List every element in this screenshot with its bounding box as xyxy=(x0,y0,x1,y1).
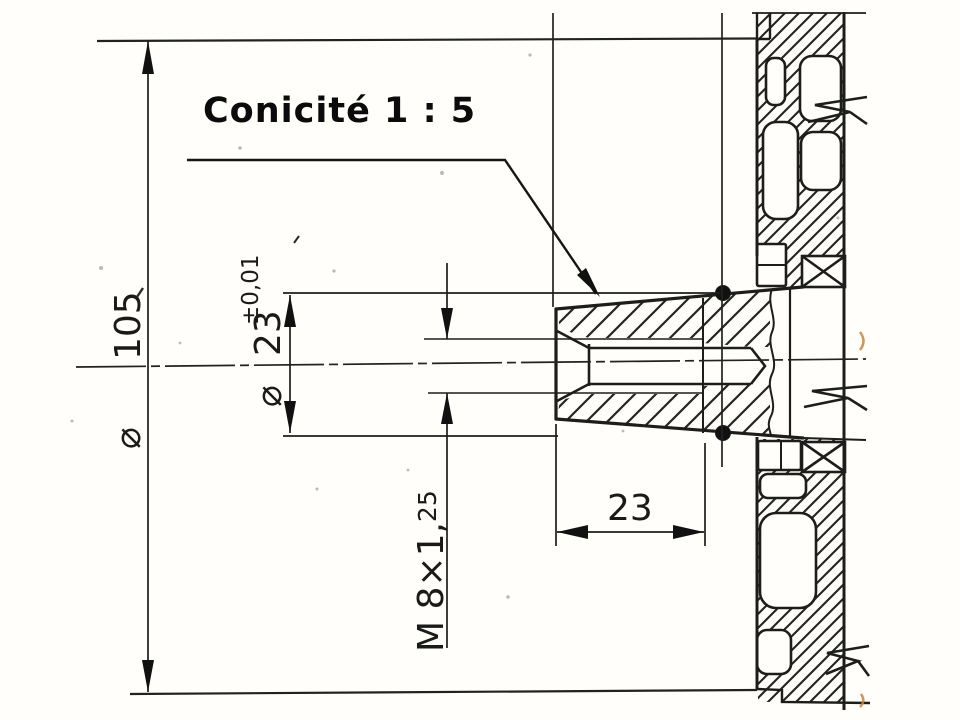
scanned-technical-drawing: ⌀ 105 ⌀ 23 ±0,01 M 8×1,25 23 Conicité 1 … xyxy=(0,0,960,720)
taper-diameter-symbol: ⌀ xyxy=(249,385,290,407)
scan-artifact xyxy=(860,332,864,707)
arrow-105-down xyxy=(142,660,154,692)
taper-socket-section xyxy=(556,286,866,441)
tangency-dot-bottom xyxy=(716,426,731,441)
outer-diameter-symbol: ⌀ xyxy=(108,427,149,449)
outer-top-line xyxy=(97,39,757,42)
outer-bottom-line xyxy=(130,690,757,694)
keyway-section-top xyxy=(802,256,845,287)
drill-point xyxy=(751,348,765,384)
arrow-23len-right xyxy=(673,525,704,539)
entry-chamfer xyxy=(557,331,589,401)
taper-length-value: 23 xyxy=(607,488,653,529)
arrow-105-up xyxy=(142,41,154,74)
center-axis-line xyxy=(76,359,866,367)
arrow-23len-left xyxy=(557,525,588,539)
taper-diameter-tolerance: ±0,01 xyxy=(238,255,264,325)
break-mark-middle xyxy=(804,386,867,410)
drawing-title: Conicité 1 : 5 xyxy=(203,91,476,131)
arrow-thread-up xyxy=(441,393,453,424)
flange-section xyxy=(752,12,870,710)
keyway-section-bottom xyxy=(802,442,845,472)
taper-bore-drawing: ⌀ 105 ⌀ 23 ±0,01 M 8×1,25 23 Conicité 1 … xyxy=(0,0,960,720)
thread-minor-lines xyxy=(589,348,751,384)
outer-diameter-value: 105 xyxy=(108,291,149,360)
tick-mark-2 xyxy=(294,236,299,243)
thread-designation: M 8×1,25 xyxy=(411,490,452,652)
arrow-thread-down xyxy=(441,308,453,339)
